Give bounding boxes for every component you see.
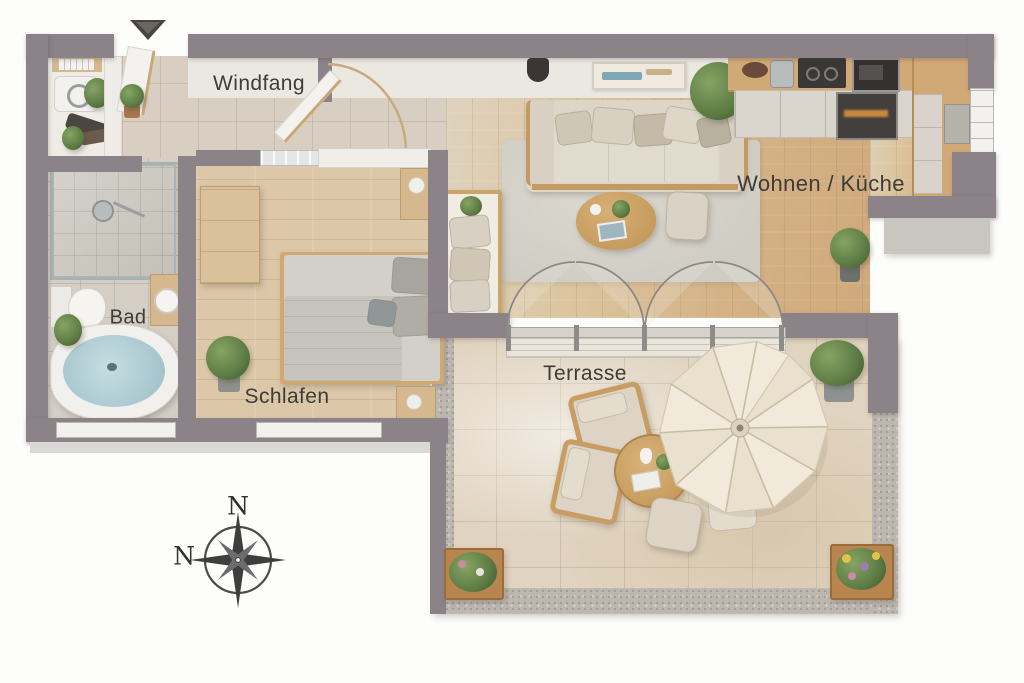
- plant-icon: [830, 228, 870, 268]
- flower-dot: [842, 554, 851, 563]
- sliding-door-panel: [318, 148, 432, 168]
- lamp-icon: [406, 394, 422, 410]
- bench-cushion: [448, 214, 491, 250]
- kitchen-sink: [770, 60, 794, 88]
- daybed-bench: [444, 190, 502, 324]
- room-label-windfang: Windfang: [213, 72, 305, 96]
- table-plant-icon: [612, 200, 630, 218]
- window-bath: [56, 422, 176, 438]
- balcony-door-swing-arcs-icon: [506, 258, 784, 332]
- wall-bath-divider: [178, 156, 196, 418]
- door-post: [574, 325, 579, 351]
- bed: [280, 252, 444, 384]
- sofa-wood-rail: [532, 184, 738, 190]
- balcony-parapet: [884, 218, 990, 254]
- coffee-table: [576, 192, 656, 250]
- floor-plan: Windfang Bad Schlafen Wohnen / Küche Ter…: [0, 0, 1024, 683]
- flower-dot: [458, 560, 466, 568]
- compass-north-left: N: [173, 542, 195, 571]
- wall-kitchen-bottom: [868, 196, 996, 218]
- sofa-arm-left: [526, 100, 554, 186]
- microwave-screen: [859, 65, 883, 80]
- sofa-pillow: [554, 110, 594, 147]
- wall-terrace-right: [868, 313, 898, 413]
- sofa-pillow: [591, 106, 636, 146]
- parasol-icon: [650, 338, 830, 518]
- compass-north-top: N: [227, 492, 249, 521]
- wall-bedroom-top: [196, 150, 260, 166]
- wall-bedroom-right: [428, 150, 448, 318]
- room-label-wohnen-kueche: Wohnen / Küche: [737, 171, 905, 197]
- plant-icon: [54, 314, 82, 346]
- window-bedroom: [256, 422, 382, 438]
- shower-head-icon: [92, 200, 114, 222]
- pouf: [665, 191, 709, 241]
- picture-art: [602, 72, 642, 80]
- flower-planter: [830, 544, 894, 600]
- serving-bowl: [742, 62, 768, 78]
- lamp-icon: [408, 177, 425, 194]
- plant-icon: [810, 340, 864, 386]
- shower-glass: [52, 164, 176, 278]
- cooktop-burner: [824, 67, 838, 81]
- armchair-back-cushion: [575, 391, 629, 424]
- bench-cushion: [449, 247, 491, 284]
- door-swing-arc-icon: [318, 56, 410, 156]
- bed-accent-pillow: [366, 298, 397, 328]
- washbasin: [154, 288, 180, 314]
- compass-rose-icon: [190, 512, 286, 608]
- flower-dot: [848, 572, 856, 580]
- wall-right-top: [968, 34, 994, 90]
- wall-bath-top: [46, 156, 142, 172]
- bench-cushion: [449, 279, 491, 313]
- bathtub-drain: [107, 363, 117, 371]
- nightstand-bottom: [396, 386, 436, 420]
- plant-icon: [206, 336, 250, 380]
- entrance-arrow-icon: [126, 6, 170, 42]
- room-label-schlafen: Schlafen: [245, 385, 330, 409]
- window-right: [970, 88, 994, 156]
- table-books: [597, 220, 627, 242]
- door-post: [642, 325, 647, 351]
- cooktop-burner: [806, 67, 820, 81]
- table-vase: [590, 204, 601, 215]
- plant-icon: [62, 126, 84, 150]
- cooktop: [798, 58, 846, 88]
- plant-icon: [120, 84, 144, 108]
- integrated-appliance: [944, 104, 970, 144]
- tall-cabinet-fronts: [914, 94, 942, 194]
- exterior-sill: [30, 442, 438, 453]
- oven-glow: [844, 110, 888, 117]
- bathtub-water: [63, 335, 165, 407]
- room-label-terrasse: Terrasse: [543, 362, 627, 386]
- microwave: [852, 58, 900, 92]
- wardrobe: [200, 186, 260, 284]
- room-label-bad: Bad: [110, 307, 147, 330]
- wall-top-main: [188, 34, 994, 58]
- oven: [836, 92, 898, 140]
- flower-planter: [444, 548, 504, 600]
- flower-dot: [872, 552, 880, 560]
- armchair-back-cushion: [559, 446, 591, 501]
- glass-partition: [260, 150, 320, 166]
- towels: [58, 59, 94, 70]
- bench-plant-icon: [460, 196, 482, 216]
- picture-art-2: [646, 69, 672, 75]
- flowers-icon: [449, 552, 497, 592]
- flower-dot: [860, 562, 869, 571]
- door-post: [506, 325, 511, 351]
- wall-picture: [592, 62, 686, 90]
- flower-dot: [476, 568, 484, 576]
- wall-lamp-icon: [527, 58, 549, 82]
- wall-left: [26, 34, 48, 442]
- wall-living-bottom-left: [428, 313, 510, 338]
